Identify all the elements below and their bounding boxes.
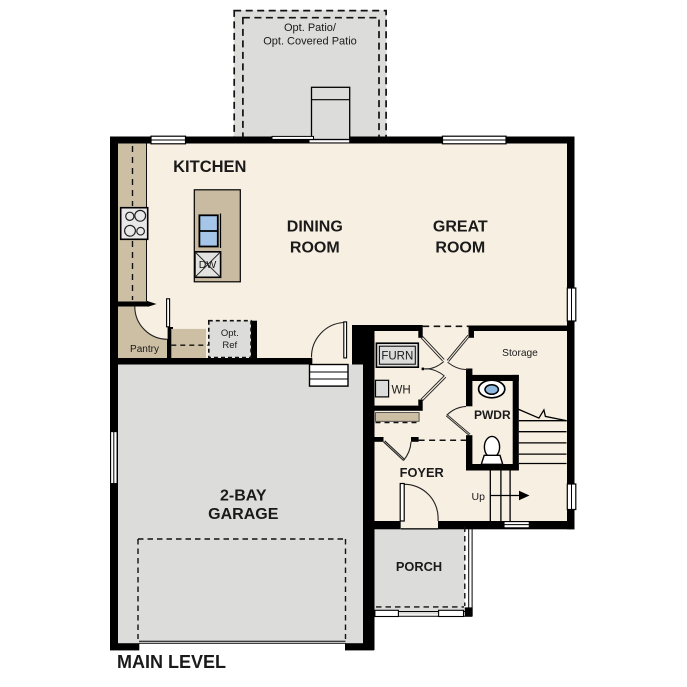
svg-text:2-BAY: 2-BAY (220, 488, 267, 505)
svg-text:GARAGE: GARAGE (208, 506, 279, 523)
svg-text:PORCH: PORCH (396, 559, 442, 574)
svg-text:DINING: DINING (287, 219, 343, 236)
svg-text:FURN: FURN (381, 351, 413, 363)
svg-text:DW: DW (199, 259, 217, 271)
svg-text:Pantry: Pantry (130, 344, 159, 355)
svg-text:Opt. Covered Patio: Opt. Covered Patio (263, 36, 357, 48)
svg-text:GREAT: GREAT (433, 219, 488, 236)
svg-text:PWDR: PWDR (474, 408, 511, 422)
svg-text:Opt. Patio/: Opt. Patio/ (284, 22, 337, 34)
svg-text:Opt.: Opt. (221, 328, 239, 339)
svg-text:KITCHEN: KITCHEN (173, 158, 246, 176)
svg-text:ROOM: ROOM (290, 239, 340, 256)
svg-text:Storage: Storage (502, 348, 538, 359)
svg-text:WH: WH (392, 385, 411, 397)
svg-text:MAIN LEVEL: MAIN LEVEL (117, 652, 226, 672)
svg-text:Ref: Ref (222, 340, 237, 351)
svg-text:ROOM: ROOM (435, 239, 485, 256)
svg-text:FOYER: FOYER (400, 465, 444, 480)
svg-text:Up: Up (472, 491, 486, 503)
